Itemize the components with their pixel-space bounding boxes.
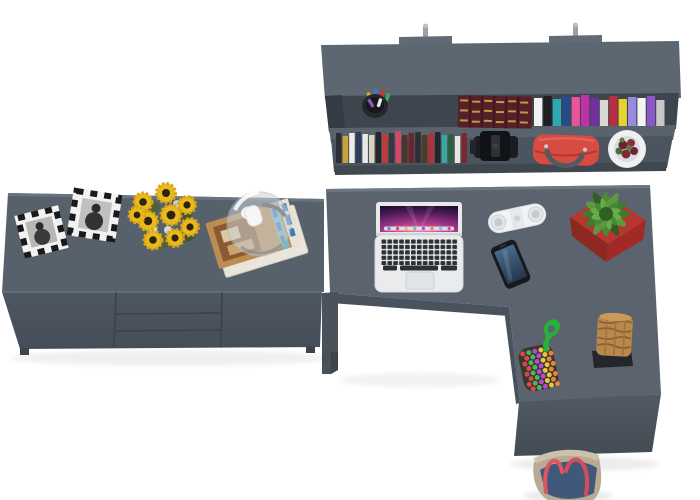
laptop-dock <box>384 227 454 231</box>
book-spine <box>336 133 342 163</box>
book-spine <box>356 132 362 163</box>
glass-dome-lamp <box>227 192 291 256</box>
shelf-potted-plant <box>608 130 646 168</box>
book-spine <box>628 97 636 126</box>
sideboard-door-gap-right <box>221 292 222 347</box>
book-spine <box>647 96 655 126</box>
dock-icon <box>448 227 451 230</box>
wall-shelf <box>321 23 681 175</box>
book-spine <box>415 132 421 163</box>
book-spine <box>590 98 598 126</box>
book-spine <box>402 135 408 163</box>
shelf-pin-right-head <box>573 23 578 28</box>
dock-icon <box>387 227 390 230</box>
scene-svg <box>0 0 700 500</box>
drawer-gap-1 <box>114 313 222 314</box>
sideboard-shadow <box>10 350 330 366</box>
book-spine <box>534 98 542 126</box>
drawer-gap-2 <box>114 330 221 331</box>
book-spine <box>553 99 561 126</box>
red-handbag <box>532 134 599 167</box>
book-spine <box>448 134 454 163</box>
book-spine <box>376 132 382 163</box>
book-spine <box>581 95 589 126</box>
book-spine <box>389 133 395 163</box>
book-spine <box>435 132 441 163</box>
dock-icon <box>430 227 433 230</box>
book-spine <box>656 100 664 126</box>
antique-book-stack <box>458 95 533 128</box>
book-spine <box>600 100 608 126</box>
laptop-keyboard <box>381 239 458 265</box>
book-spine <box>543 96 551 126</box>
book-spine <box>461 133 467 163</box>
book-spine <box>442 135 448 163</box>
book-spine <box>562 96 570 126</box>
shelf-pin-left-head <box>423 24 428 29</box>
book-spine <box>362 134 368 163</box>
book-spine <box>428 133 434 163</box>
woven-basket <box>592 312 633 368</box>
book-spine <box>369 135 375 163</box>
dock-icon <box>439 227 442 230</box>
book-spine <box>619 99 627 126</box>
book-spine <box>422 135 428 163</box>
picture-frame-2 <box>67 188 123 243</box>
book-spine <box>609 96 617 126</box>
sideboard-leg-right <box>306 346 315 353</box>
book-spine <box>455 136 461 163</box>
laptop-trackpad <box>406 272 434 289</box>
dock-icon <box>422 227 425 230</box>
book-spine <box>637 98 645 126</box>
book-spine <box>382 134 388 163</box>
render-stage <box>0 0 700 500</box>
laptop-spacebar <box>400 266 438 271</box>
desk-return-front-face <box>514 394 661 456</box>
book-spine <box>409 133 415 163</box>
book-spine <box>572 97 580 126</box>
book-spine <box>395 131 401 163</box>
dock-icon <box>405 227 408 230</box>
sideboard-front-face <box>2 292 322 349</box>
desk-leg-shadow <box>340 373 500 387</box>
laptop <box>375 202 463 292</box>
book-spine <box>343 136 349 163</box>
sideboard <box>2 184 330 367</box>
dock-icon <box>413 227 416 230</box>
sideboard-leg-left <box>20 348 29 355</box>
dock-icon <box>396 227 399 230</box>
book-spine <box>349 133 355 163</box>
